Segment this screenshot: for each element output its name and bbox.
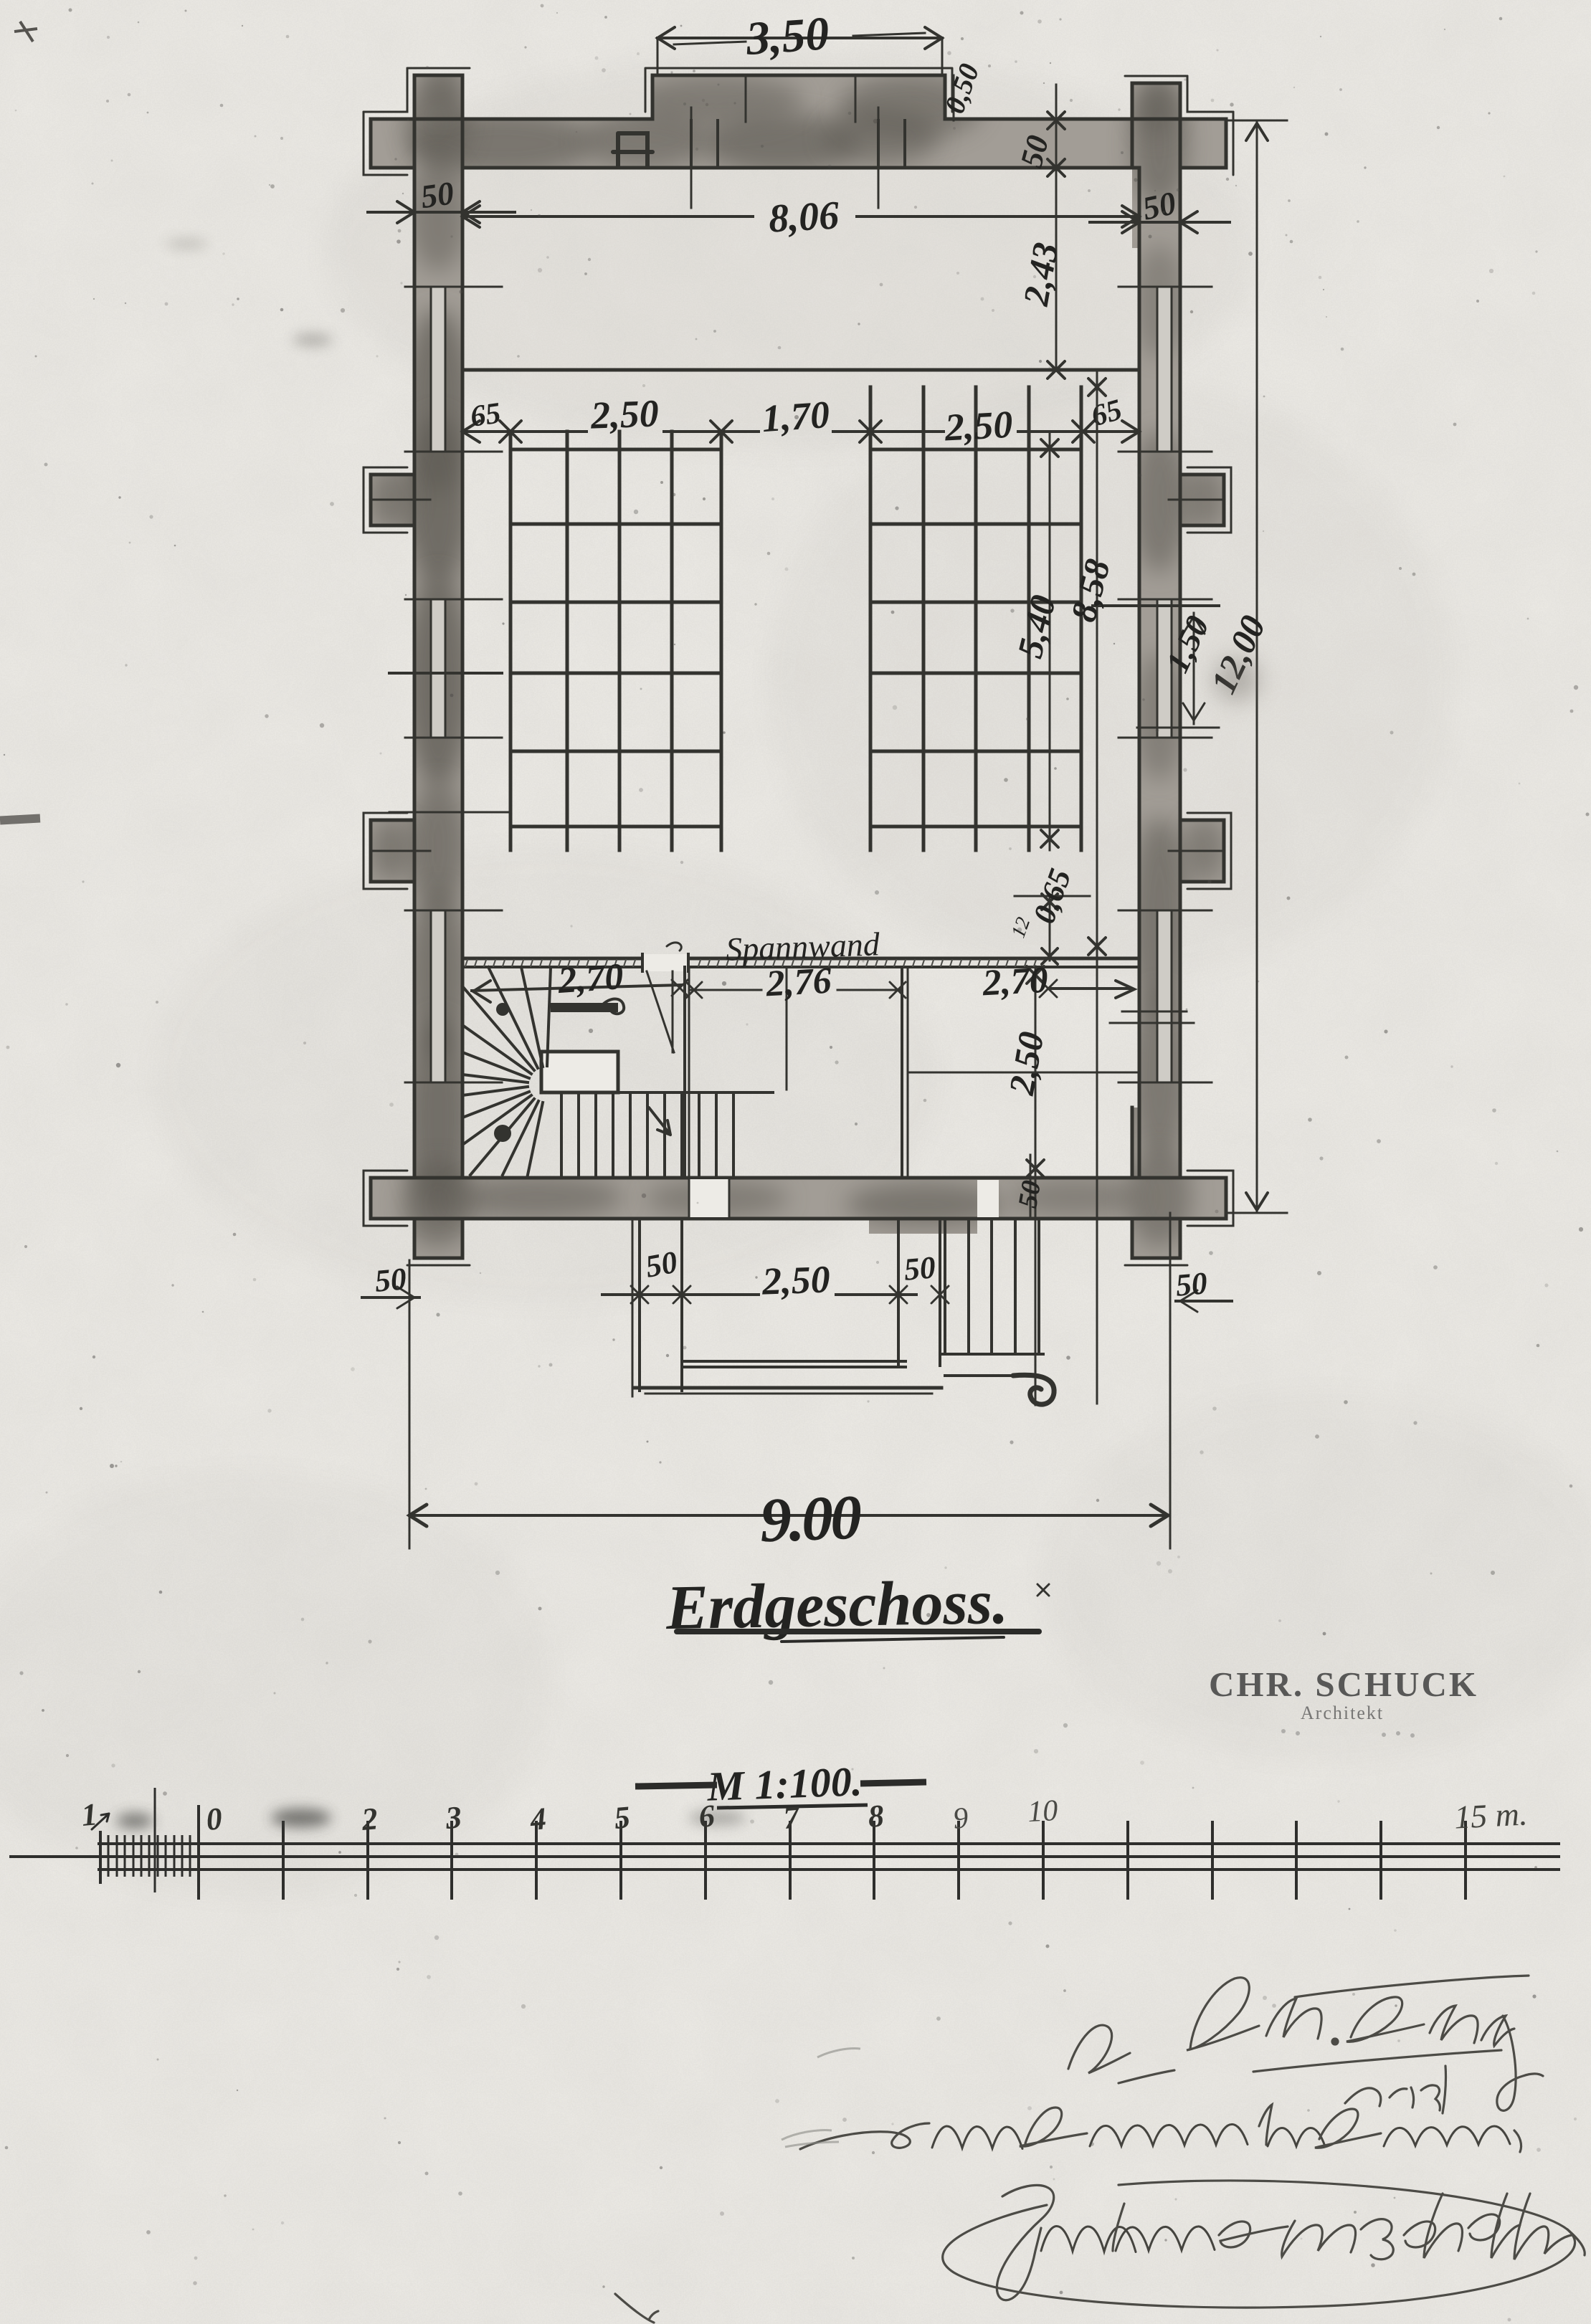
- svg-text:4: 4: [528, 1801, 548, 1837]
- svg-text:0: 0: [205, 1801, 224, 1837]
- svg-text:50: 50: [419, 174, 457, 215]
- svg-text:8: 8: [867, 1798, 885, 1834]
- svg-text:9: 9: [951, 1801, 969, 1836]
- svg-text:50: 50: [643, 1244, 680, 1285]
- svg-text:50: 50: [374, 1261, 408, 1299]
- svg-text:Architekt: Architekt: [1301, 1702, 1384, 1723]
- svg-text:3,50: 3,50: [744, 7, 830, 65]
- svg-text:2,50: 2,50: [943, 403, 1014, 449]
- svg-text:2: 2: [360, 1801, 379, 1837]
- svg-text:65: 65: [468, 396, 503, 433]
- svg-text:50: 50: [903, 1249, 937, 1287]
- svg-text:2,50: 2,50: [589, 391, 660, 437]
- svg-text:15 m.: 15 m.: [1453, 1795, 1529, 1835]
- svg-text:2,76: 2,76: [764, 961, 832, 1005]
- svg-text:3: 3: [444, 1799, 463, 1836]
- svg-text:10: 10: [1027, 1794, 1058, 1829]
- svg-text:2,70: 2,70: [556, 956, 624, 1001]
- svg-text:5: 5: [613, 1799, 632, 1836]
- svg-text:50: 50: [1012, 1178, 1047, 1211]
- svg-text:1: 1: [80, 1796, 99, 1833]
- svg-text:CHR. SCHUCK: CHR. SCHUCK: [1209, 1665, 1478, 1704]
- svg-text:2,50: 2,50: [761, 1257, 831, 1303]
- svg-text:9.00: 9.00: [759, 1483, 862, 1556]
- svg-text:8,06: 8,06: [768, 194, 840, 242]
- svg-text:50: 50: [1174, 1265, 1209, 1303]
- svg-text:2,70: 2,70: [981, 960, 1049, 1004]
